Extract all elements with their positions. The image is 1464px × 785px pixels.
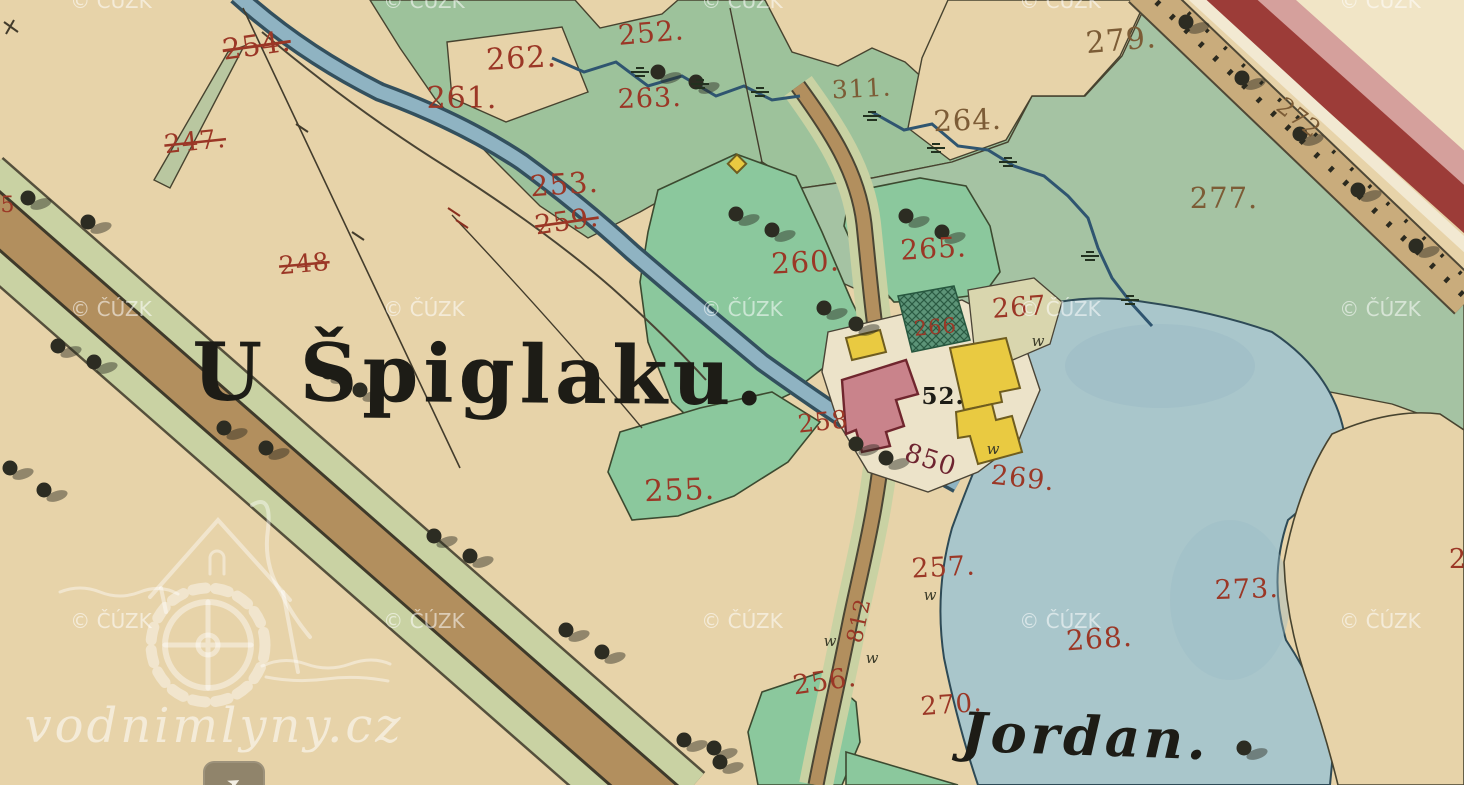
cadastral-map: wwwww 254.247.248261.262.252.263.311.279…: [0, 0, 1464, 785]
cuzk-watermark: © ČÚZK: [701, 609, 783, 633]
parcel-number: 248: [278, 247, 331, 280]
place-name-label: U Špiglaku.: [192, 324, 769, 423]
site-watermark-text: vodnimlyny.cz: [24, 698, 403, 754]
meadow-symbol: w: [924, 586, 937, 604]
cuzk-watermark: © ČÚZK: [383, 0, 465, 13]
meadow-symbol: w: [987, 440, 1000, 458]
parcel-number: 260.: [770, 243, 840, 281]
parcel-number: 311.: [831, 72, 892, 104]
share-icon: ➤: [224, 770, 245, 785]
cuzk-watermark: © ČÚZK: [701, 297, 783, 321]
cadastral-map-viewport: wwwww 254.247.248261.262.252.263.311.279…: [0, 0, 1464, 785]
cuzk-watermark: © ČÚZK: [1019, 609, 1101, 633]
parcel-number: 265.: [900, 230, 968, 266]
parcel-number: 261.: [427, 81, 498, 116]
parcel-number: 279.: [1084, 20, 1158, 61]
cuzk-watermark: © ČÚZK: [70, 0, 152, 13]
parcel-number: 266: [913, 313, 958, 341]
cuzk-watermark: © ČÚZK: [1339, 0, 1421, 13]
meadow-symbol: w: [1032, 332, 1045, 350]
parcel-number: 277.: [1190, 181, 1259, 215]
cuzk-watermark: © ČÚZK: [1019, 297, 1101, 321]
cuzk-watermark: © ČÚZK: [1339, 609, 1421, 633]
parcel-number: 2: [1449, 544, 1464, 575]
parcel-number: 258: [796, 404, 849, 438]
parcel-number: 253.: [529, 165, 600, 204]
cuzk-watermark: © ČÚZK: [383, 609, 465, 633]
parcel-number: 252.: [617, 13, 686, 52]
parcel-number: 263.: [617, 82, 682, 115]
parcel-number: 264.: [933, 102, 1003, 138]
meadow-symbol: w: [824, 632, 837, 650]
cuzk-watermark: © ČÚZK: [1339, 297, 1421, 321]
parcel-number: 273.: [1214, 573, 1279, 606]
cuzk-watermark: © ČÚZK: [70, 297, 152, 321]
parcel-number: 262.: [485, 39, 558, 78]
meadow-symbol: w: [866, 649, 879, 667]
cuzk-watermark: © ČÚZK: [70, 609, 152, 633]
parcel-number: 5: [1, 193, 16, 218]
cuzk-watermark: © ČÚZK: [383, 297, 465, 321]
parcel-number: 257.: [911, 550, 977, 584]
cuzk-watermark: © ČÚZK: [1019, 0, 1101, 13]
building-number-label: 52.: [921, 383, 964, 410]
pond-name-label: Jordan.: [951, 699, 1211, 772]
share-button[interactable]: ➤: [203, 761, 265, 785]
cuzk-watermark: © ČÚZK: [701, 0, 783, 13]
parcel-number: 255.: [644, 472, 716, 509]
